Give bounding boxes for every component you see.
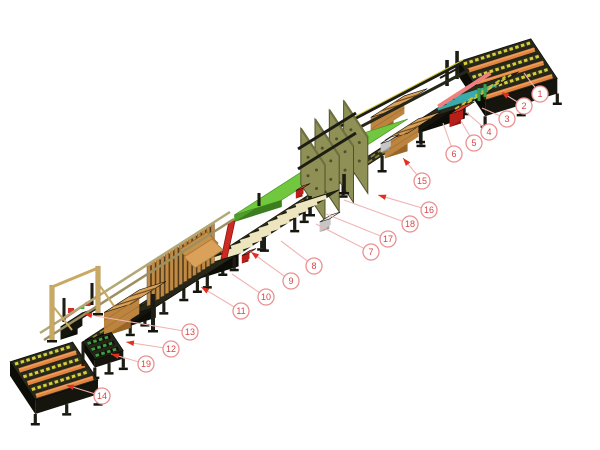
arrow-icon [126,341,134,347]
green-guide-post [478,88,481,101]
callout-18: 18 [344,200,418,232]
callout-number: 19 [141,359,151,369]
callout-9: 9 [251,252,299,289]
machine-line-diagram: 12345678910111213141516171819 [0,0,600,450]
callout-10: 10 [232,274,274,305]
callout-number: 6 [451,149,456,159]
callout-12: 12 [126,341,179,358]
arrow-icon [251,252,259,259]
callout-number: 9 [288,276,293,286]
callout-number: 12 [166,344,176,354]
callout-number: 13 [185,327,195,337]
table-leg [258,193,261,206]
callout-number: 2 [521,101,526,111]
callout-17: 17 [326,214,396,247]
callout-7: 7 [316,224,379,260]
callout-number: 10 [261,292,271,302]
callout-11: 11 [201,287,249,319]
callout-number: 5 [471,138,476,148]
callout-number: 11 [236,306,245,316]
callout-number: 17 [383,234,393,244]
outfeed-mast [82,342,85,366]
callout-number: 8 [311,261,316,271]
callout-number: 1 [537,89,542,99]
callout-16: 16 [378,195,437,218]
callout-5: 5 [461,121,482,151]
diagram-canvas: 12345678910111213141516171819 [0,0,600,450]
callout-number: 14 [97,391,107,401]
callout-layer: 12345678910111213141516171819 [66,73,548,404]
callout-number: 16 [424,205,434,215]
arrow-icon [378,195,387,200]
green-guide-post [484,84,487,97]
callout-8: 8 [281,241,322,274]
callout-number: 4 [486,127,491,137]
callout-number: 3 [504,114,509,124]
callout-6: 6 [443,123,462,162]
callout-number: 15 [417,176,427,186]
callout-19: 19 [111,354,154,373]
callout-number: 18 [405,219,415,229]
callout-15: 15 [403,158,430,189]
callout-number: 7 [368,247,373,257]
